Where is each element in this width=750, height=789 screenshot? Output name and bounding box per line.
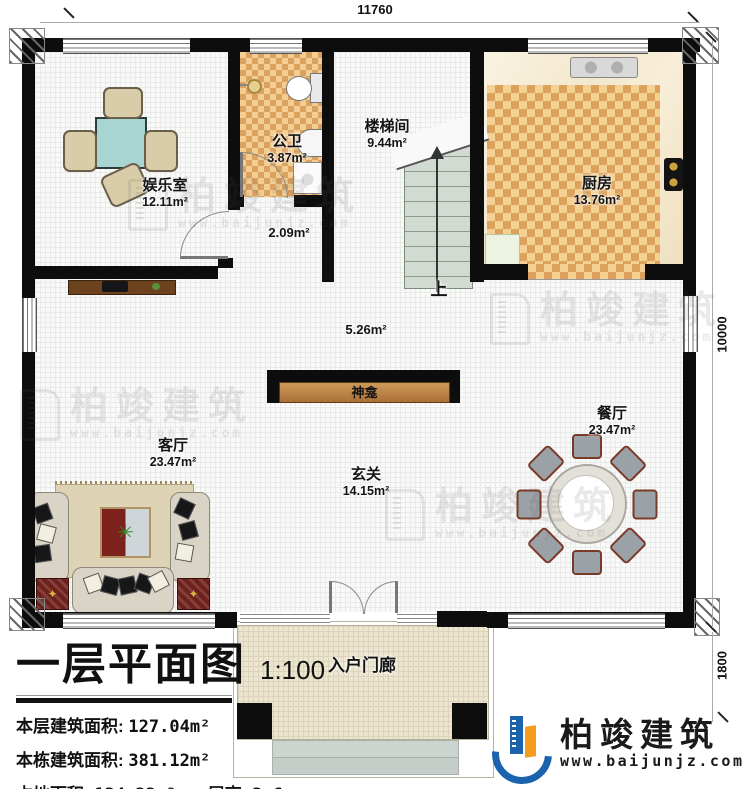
kitchen-door-threshold [528, 264, 645, 280]
stairs-up-label: 上 [428, 280, 450, 300]
dimension-line [712, 632, 713, 722]
footprint-row: 占地面积: 134.23m² 层高: 3.6m [16, 780, 316, 789]
dimension-line [40, 22, 700, 23]
dimension-tick [687, 11, 698, 22]
window [63, 613, 215, 629]
room-label-foyer: 玄关 14.15m² [321, 466, 411, 498]
logo-tower-blue [510, 716, 523, 754]
brand-logo-icon [492, 714, 550, 774]
plant-icon: ✳ [117, 523, 134, 543]
wall [645, 264, 696, 280]
chair [144, 130, 178, 172]
room-label-living: 客厅 23.47m² [128, 437, 218, 469]
logo-tower-orange [525, 725, 536, 758]
chair [63, 130, 97, 172]
title-rule-thin [16, 695, 232, 696]
window [508, 613, 665, 629]
laptop [102, 281, 128, 292]
entry-sill [240, 614, 330, 623]
dining-table-top [558, 475, 614, 531]
brand-url: www.baijunjz.com [560, 752, 745, 770]
room-label-dining: 餐厅 23.47m² [567, 405, 657, 437]
room-label-bathroom: 公卫 3.87m² [247, 133, 327, 165]
room-label-entertainment: 娱乐室 12.11m² [120, 177, 210, 209]
porch-column [452, 703, 487, 739]
entry-sill [397, 614, 437, 623]
coffee-table: ✳ [100, 507, 151, 558]
shower-head [247, 79, 262, 94]
pillow [175, 543, 195, 563]
brand-text: 柏竣建筑 www.baijunjz.com [560, 718, 745, 771]
desk-plant [152, 283, 160, 290]
dimension-tick [63, 7, 74, 18]
kitchen-sink [570, 57, 638, 78]
window [22, 298, 37, 352]
dining-chair [633, 490, 658, 520]
dining-chair [517, 490, 542, 520]
door-mat: ✦ [177, 578, 210, 610]
window [250, 38, 302, 54]
wall [294, 195, 322, 207]
window [528, 38, 648, 54]
pillow [33, 544, 52, 563]
corner-hatch [682, 27, 719, 64]
plan-title-row: 一层平面图1:100 [16, 628, 316, 692]
shrine-shelf: 神龛 [279, 382, 450, 403]
dimension-line [712, 40, 713, 628]
corner-hatch [9, 28, 45, 64]
dimension-top: 11760 [340, 2, 410, 17]
toilet [286, 76, 312, 101]
floor-plan-canvas: 神龛 ✳ ✦ ✦ [0, 0, 750, 789]
dimension-right: 10000 [715, 305, 730, 365]
wall [470, 264, 528, 280]
dining-chair [572, 550, 602, 575]
washing-machine [293, 162, 322, 194]
wall [218, 258, 233, 268]
room-label-stairwell: 楼梯间 9.44m² [342, 118, 432, 150]
area-label-hallway: 2.09m² [250, 225, 328, 240]
plan-scale: 1:100 [260, 655, 325, 685]
room-label-kitchen: 厨房 13.76m² [552, 175, 642, 207]
total-area-row: 本栋建筑面积: 381.12m² [16, 746, 316, 771]
brand-logo: 柏竣建筑 www.baijunjz.com [492, 714, 745, 774]
game-table [95, 117, 147, 169]
wall [437, 611, 487, 627]
title-block: 一层平面图1:100 本层建筑面积: 127.04m² 本栋建筑面积: 381.… [16, 628, 316, 789]
floor-area-row: 本层建筑面积: 127.04m² [16, 712, 316, 737]
stair-arrow-head-icon [430, 146, 444, 159]
dining-chair [572, 434, 602, 459]
room-label-porch: 入户门廊 [322, 656, 402, 676]
window [63, 38, 190, 54]
window [683, 296, 698, 352]
stove [664, 158, 683, 191]
shrine-label: 神龛 [351, 385, 377, 400]
corner-hatch [9, 598, 45, 631]
wall [470, 52, 484, 282]
dimension-porch: 1800 [715, 636, 730, 696]
title-rule [16, 698, 232, 703]
wall [322, 52, 334, 282]
wall [35, 266, 218, 279]
area-label-corridor: 5.26m² [327, 322, 405, 337]
stair-arrow-line [436, 158, 438, 292]
shower-arm [240, 84, 248, 86]
chair [103, 87, 143, 119]
plan-title: 一层平面图 [16, 640, 246, 689]
wall [228, 52, 240, 210]
brand-name: 柏竣建筑 [560, 718, 745, 753]
